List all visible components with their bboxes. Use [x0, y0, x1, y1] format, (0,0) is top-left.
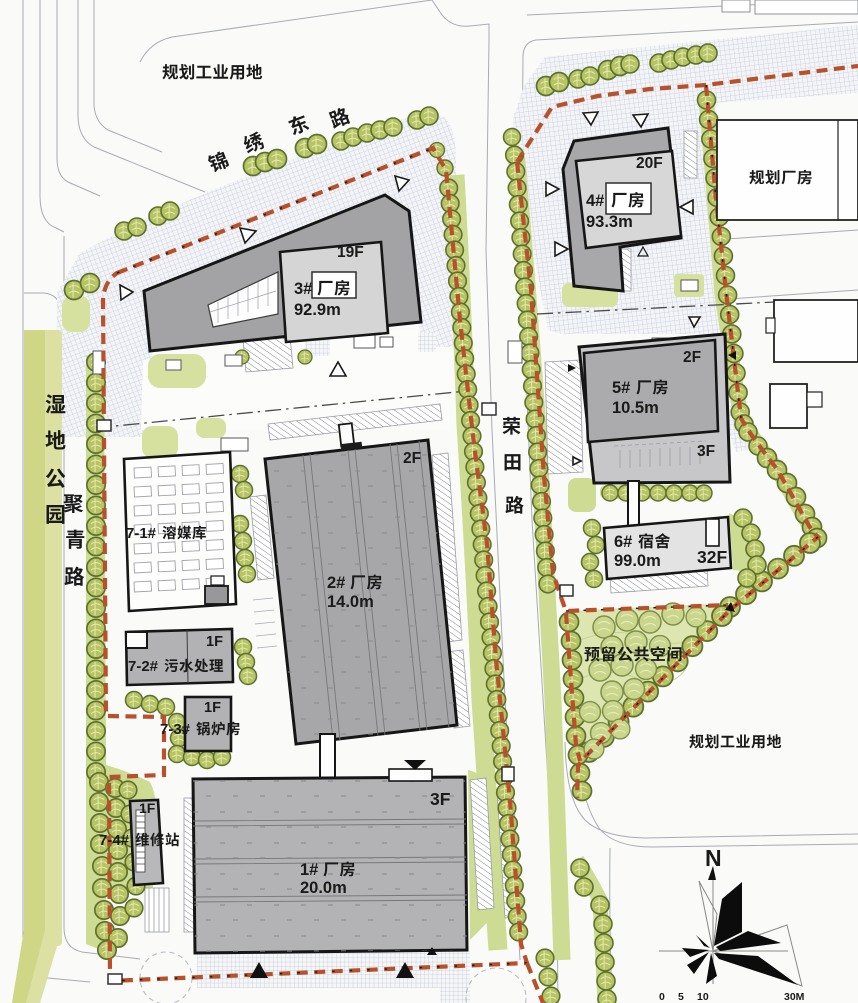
- svg-text:7-1#: 7-1#: [126, 525, 157, 542]
- svg-text:2F: 2F: [403, 450, 421, 467]
- svg-text:93.3m: 93.3m: [586, 213, 633, 231]
- svg-text:1F: 1F: [139, 800, 156, 816]
- svg-text:19F: 19F: [337, 244, 364, 261]
- svg-text:1F: 1F: [206, 634, 223, 650]
- svg-text:1#: 1#: [300, 861, 318, 879]
- svg-text:20F: 20F: [636, 155, 663, 172]
- svg-text:5: 5: [678, 991, 684, 1003]
- svg-text:92.9m: 92.9m: [294, 301, 341, 319]
- svg-text:0: 0: [659, 991, 665, 1003]
- svg-text:99.0m: 99.0m: [614, 552, 661, 570]
- svg-text:7-3#: 7-3#: [160, 721, 191, 738]
- svg-text:1F: 1F: [204, 700, 221, 716]
- svg-text:7-2#: 7-2#: [128, 658, 159, 675]
- svg-text:3F: 3F: [430, 789, 451, 809]
- svg-text:4#: 4#: [586, 192, 604, 210]
- svg-text:20.0m: 20.0m: [300, 879, 347, 897]
- svg-text:10: 10: [697, 991, 709, 1003]
- svg-text:32F: 32F: [697, 547, 727, 567]
- svg-text:3F: 3F: [697, 443, 715, 460]
- svg-text:14.0m: 14.0m: [327, 593, 374, 611]
- svg-text:10.5m: 10.5m: [612, 399, 659, 417]
- svg-text:6#: 6#: [614, 533, 632, 551]
- svg-text:30M: 30M: [784, 991, 805, 1003]
- svg-text:3#: 3#: [294, 280, 312, 298]
- svg-text:2F: 2F: [683, 349, 701, 366]
- svg-text:5#: 5#: [612, 379, 630, 397]
- svg-text:7-4#: 7-4#: [99, 832, 130, 849]
- svg-text:2#: 2#: [327, 574, 345, 592]
